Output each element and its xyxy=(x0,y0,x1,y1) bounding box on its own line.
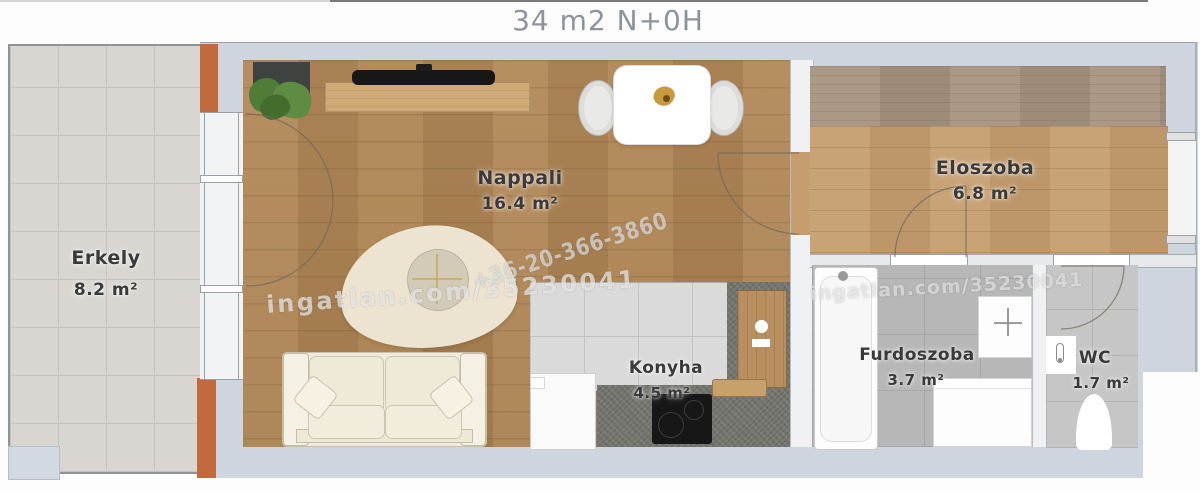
floorplan-canvas: 34 m2 N+0H Erkely 8.2 m² xyxy=(0,0,1200,492)
cabinet-detail xyxy=(752,339,770,347)
washing-machine-detail xyxy=(935,388,1030,389)
room-label-wc: WC xyxy=(1079,348,1111,368)
room-label-erkely: Erkely xyxy=(71,247,140,269)
door-opening-hallway xyxy=(791,152,811,235)
entrance-door xyxy=(1168,140,1196,237)
outside-area-bottom-right xyxy=(1143,372,1200,480)
top-border-line xyxy=(330,0,1148,2)
window-frame-line xyxy=(238,113,239,379)
room-area-furdoszoba: 3.7 m² xyxy=(888,371,945,389)
window-divider xyxy=(200,285,243,293)
brick-wall-segment-bottom xyxy=(197,378,216,478)
room-area-eloszoba: 6.8 m² xyxy=(953,184,1017,204)
entrance-door-frame xyxy=(1166,132,1196,141)
entrance-door-frame xyxy=(1166,235,1196,244)
dining-chair xyxy=(578,80,618,136)
window-frame-line xyxy=(204,113,205,379)
burner-icon xyxy=(684,400,704,420)
balcony-step xyxy=(8,446,60,480)
outside-area-bottom xyxy=(0,478,1200,492)
room-area-wc: 1.7 m² xyxy=(1073,374,1130,392)
room-area-nappali: 16.4 m² xyxy=(482,194,559,214)
top-border-line-faint xyxy=(0,0,330,2)
brick-wall-segment-top xyxy=(200,44,218,112)
room-area-konyha: 4.5 m² xyxy=(634,384,691,402)
table-decor-detail xyxy=(663,95,670,102)
room-label-eloszoba: Eloszoba xyxy=(936,157,1034,179)
sink-faucet-icon xyxy=(1007,308,1009,336)
room-label-nappali: Nappali xyxy=(477,167,562,189)
bathtub-faucet-icon xyxy=(838,271,848,281)
tv-mount xyxy=(416,64,432,71)
tv xyxy=(352,70,495,85)
hallway-wardrobe xyxy=(810,66,1166,128)
cutting-board xyxy=(712,379,767,397)
chair-seat xyxy=(710,86,738,130)
fridge-handle xyxy=(530,377,545,389)
room-label-konyha: Konyha xyxy=(629,358,703,378)
burner-icon xyxy=(658,412,684,438)
cabinet-knob xyxy=(755,320,768,333)
bathroom-sink xyxy=(978,296,1032,358)
wc-faucet-icon xyxy=(1058,358,1062,362)
window-divider xyxy=(200,175,243,183)
room-label-furdoszoba: Furdoszoba xyxy=(859,345,974,365)
plan-title: 34 m2 N+0H xyxy=(512,4,704,37)
sofa xyxy=(282,352,487,447)
dining-chair xyxy=(704,80,744,136)
tv-stand xyxy=(325,82,530,112)
chair-seat xyxy=(584,86,612,130)
room-area-erkely: 8.2 m² xyxy=(74,280,138,300)
balcony-door-window xyxy=(200,112,243,380)
